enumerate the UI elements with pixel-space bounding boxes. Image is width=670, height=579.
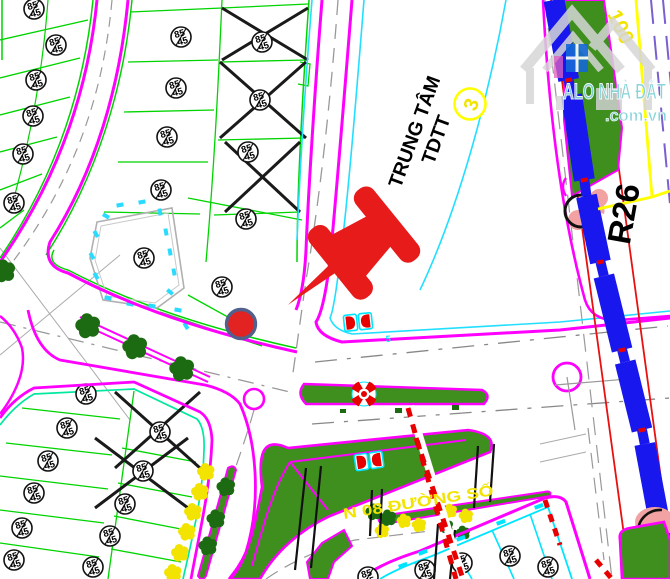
svg-text:.com.vn: .com.vn: [605, 106, 667, 125]
svg-text:5: 5: [385, 334, 391, 344]
svg-text:ALO NHÀ ĐẤT: ALO NHÀ ĐẤT: [563, 79, 666, 104]
